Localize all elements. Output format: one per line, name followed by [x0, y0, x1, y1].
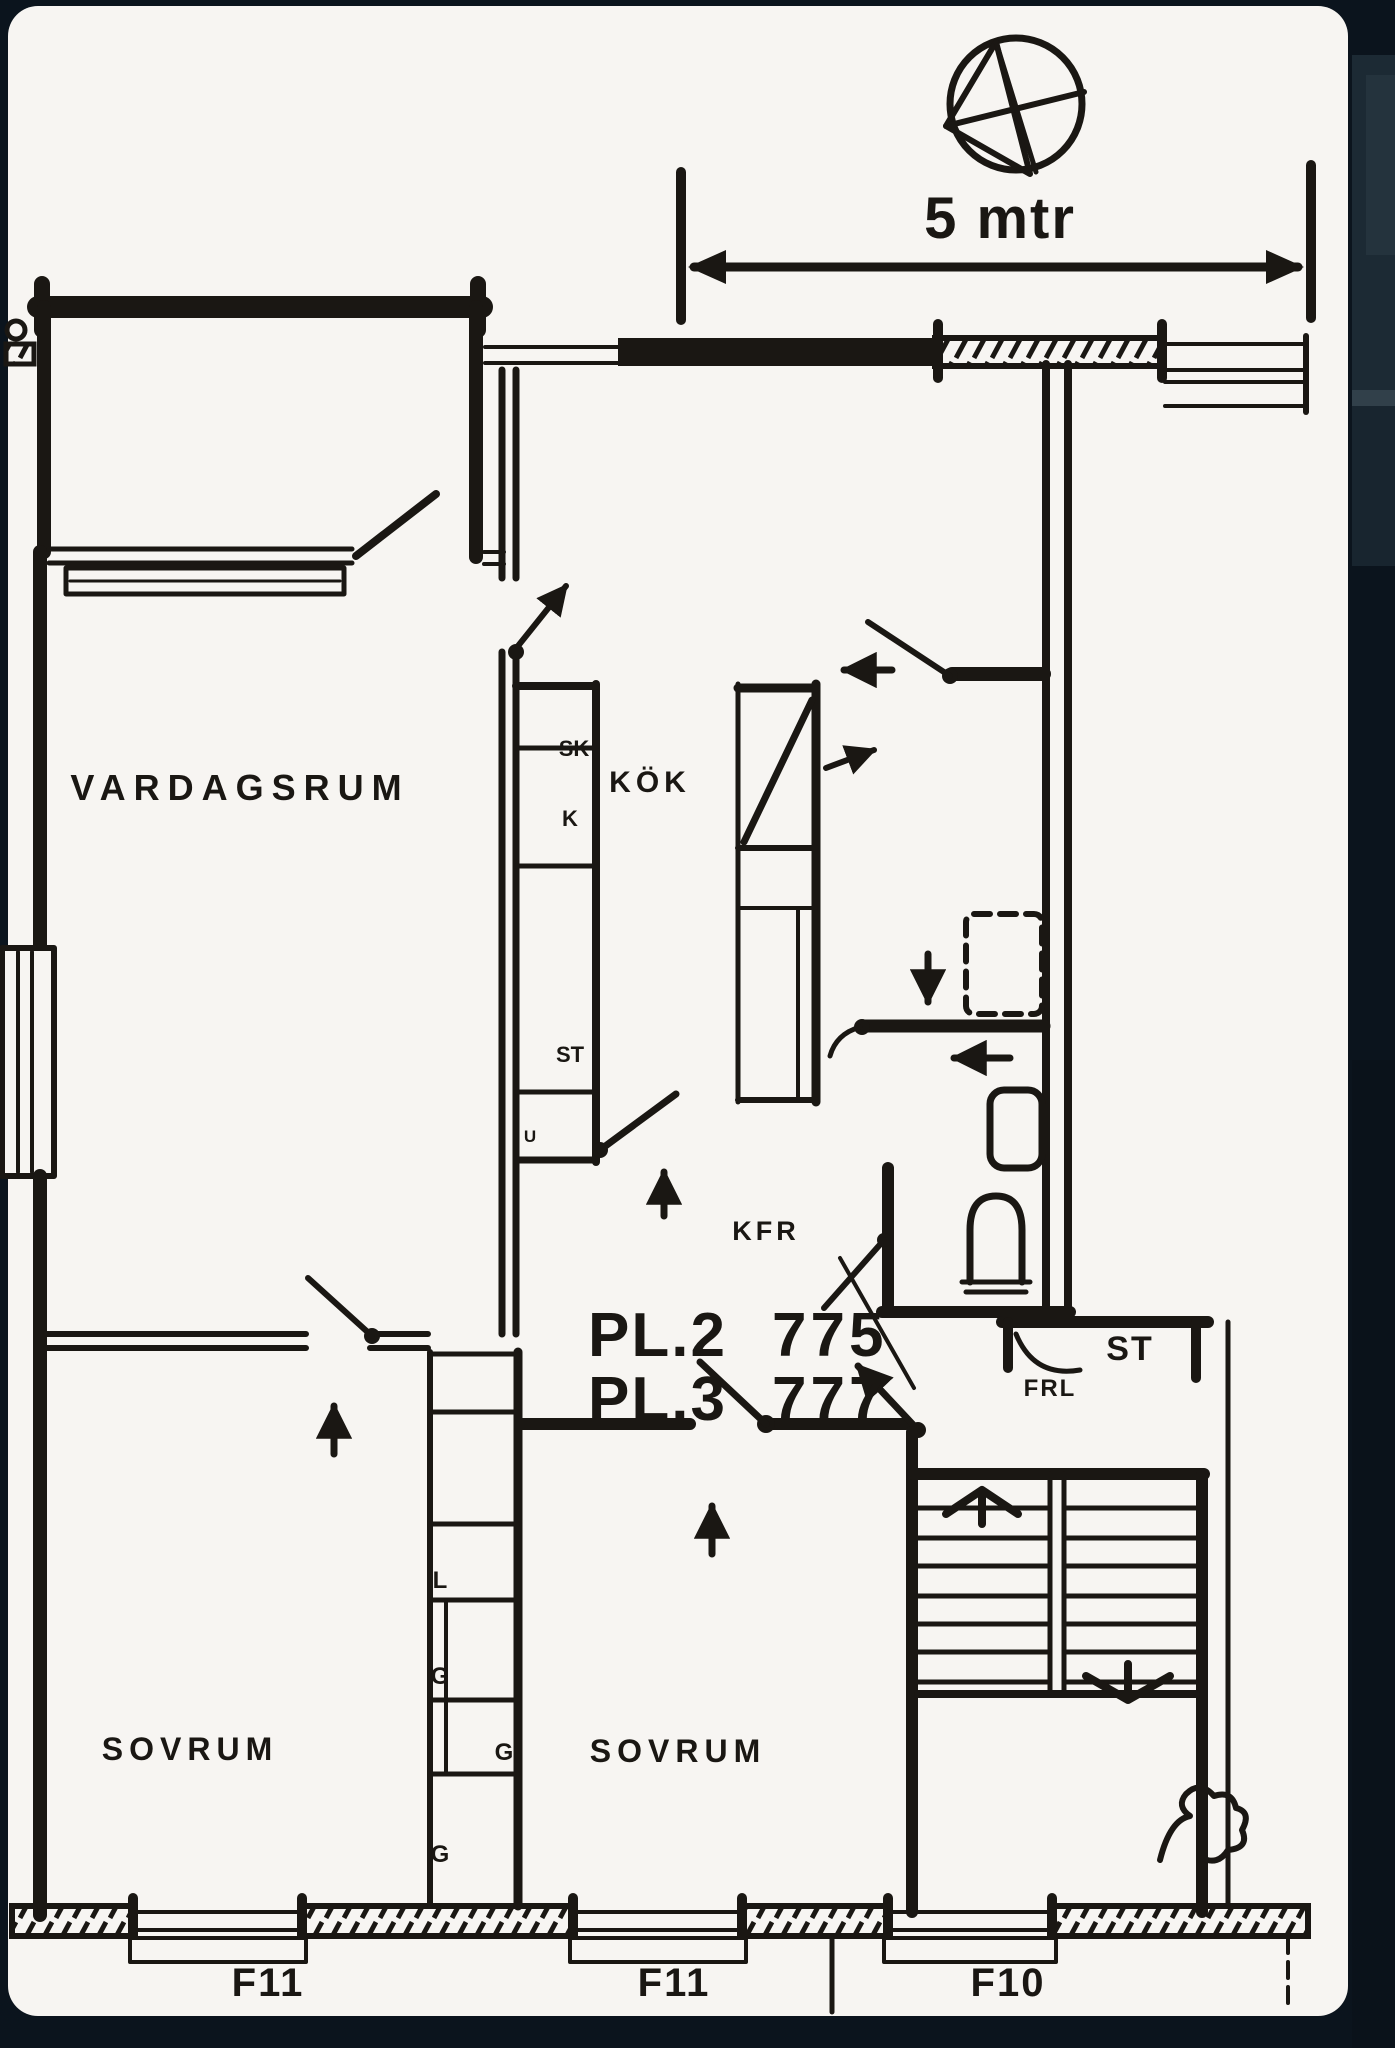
background-block-mid [1352, 406, 1395, 566]
wardrobe-g3-label: G [431, 1841, 450, 1868]
wardrobe-g1-label: G [431, 1663, 450, 1690]
wardrobe-g2-label: G [495, 1739, 514, 1766]
kitchen-unit-sk-label: SK [559, 736, 590, 761]
bottom-wall-seg-1 [12, 1906, 135, 1936]
wall-pin-circle [7, 321, 25, 339]
bottom-wall-seg-3 [740, 1906, 890, 1936]
closet-st-label: ST [1106, 1330, 1153, 1368]
bottom-wall-seg-4 [1050, 1906, 1308, 1936]
floor-plan-drawing: 5 mtr [0, 0, 1395, 2048]
apartment-pl3-label: PL.3 [588, 1365, 727, 1434]
background-block-window [1366, 75, 1395, 255]
kitchen-label: KÖK [609, 766, 691, 799]
apartment-pl2-number: 775 [772, 1301, 887, 1370]
window-f11-middle-label: F11 [638, 1961, 711, 2005]
wardrobe-l-label: L [433, 1567, 448, 1594]
apartment-pl3-number: 777 [772, 1365, 887, 1434]
kitchen-unit-k-label: K [562, 806, 578, 831]
closet-frl-label: FRL [1024, 1375, 1077, 1402]
bottom-window-sill-left [130, 1938, 306, 1962]
floor-plan-screenshot: 5 mtr [0, 0, 1395, 2048]
kitchen-unit-u-label: U [524, 1127, 536, 1146]
top-wall-solid [618, 338, 938, 366]
scale-label: 5 mtr [924, 186, 1076, 251]
background-photo-sliver [1348, 0, 1395, 2048]
wall-stub-left [6, 344, 34, 364]
kitchen-unit-st-label: ST [556, 1042, 585, 1067]
left-bay-window [2, 948, 54, 1176]
living-room-label: VARDAGSRUM [70, 767, 409, 808]
background-block-lower [1352, 1060, 1395, 2048]
bottom-wall-seg-2 [300, 1906, 575, 1936]
bottom-window-sill-middle [570, 1938, 746, 1962]
bedroom-right-label: SOVRUM [590, 1733, 766, 1769]
bedroom-left-label: SOVRUM [102, 1731, 278, 1767]
bottom-window-sill-right [884, 1938, 1056, 1962]
background-sill-line [1352, 390, 1395, 406]
window-f10-right-label: F10 [971, 1961, 1046, 2005]
hall-kfr-label: KFR [732, 1216, 800, 1246]
window-f11-left-label: F11 [232, 1961, 305, 2005]
apartment-pl2-label: PL.2 [588, 1301, 727, 1370]
